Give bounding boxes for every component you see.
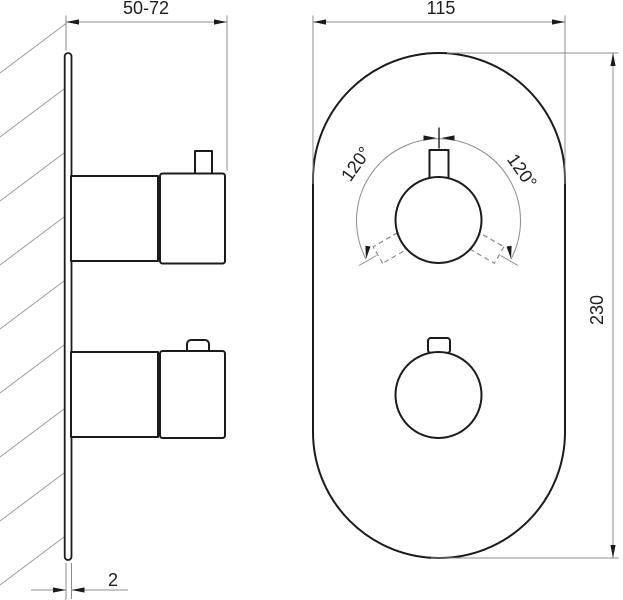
height-label-wrap: 230 xyxy=(587,295,607,325)
bottom-knob-front xyxy=(396,352,482,438)
hatch-line xyxy=(0,24,66,74)
technical-drawing-page: 50-72 2 120° xyxy=(0,0,623,600)
depth-dimension: 50-72 xyxy=(66,0,227,171)
hatch-line xyxy=(0,536,66,586)
side-view xyxy=(65,53,225,560)
hatch-line xyxy=(0,472,66,522)
top-knob-lever-side xyxy=(195,151,212,176)
width-dimension-text: 115 xyxy=(427,0,456,18)
arrowhead-top xyxy=(610,53,615,66)
thickness-dimension-text: 2 xyxy=(108,570,118,590)
top-knob-base-side xyxy=(71,176,158,261)
hatch-line xyxy=(0,88,66,138)
bottom-knob-body-side xyxy=(160,351,225,438)
hatch-line xyxy=(0,216,66,266)
height-dimension-text: 230 xyxy=(587,295,607,325)
depth-dimension-text: 50-72 xyxy=(123,0,169,18)
top-knob-lever-front xyxy=(430,150,449,178)
arrowhead-right xyxy=(72,587,85,592)
hatch-line xyxy=(0,344,66,394)
arrowhead-right xyxy=(552,19,565,24)
arrowhead-left xyxy=(313,19,326,24)
bottom-knob-button-front xyxy=(428,338,450,353)
top-knob-body-side xyxy=(160,174,225,264)
front-view: 120° 120° xyxy=(313,53,565,558)
hatch-line xyxy=(0,152,66,202)
hatch-line xyxy=(0,408,66,458)
top-knob-front xyxy=(396,177,482,263)
mixer-installation-drawing: 50-72 2 120° xyxy=(0,0,623,600)
cover-plate-side xyxy=(65,53,72,560)
thickness-dimension: 2 xyxy=(31,563,128,599)
bottom-knob-side xyxy=(71,340,225,438)
hatch-line xyxy=(0,280,66,330)
top-knob-side xyxy=(71,151,225,264)
arrowhead-left xyxy=(66,19,79,24)
arrowhead-left xyxy=(53,587,66,592)
arrowhead-right xyxy=(214,19,227,24)
bottom-knob-base-side xyxy=(71,352,158,437)
arrowhead-bottom xyxy=(610,545,615,558)
wall-hatching xyxy=(0,24,66,600)
